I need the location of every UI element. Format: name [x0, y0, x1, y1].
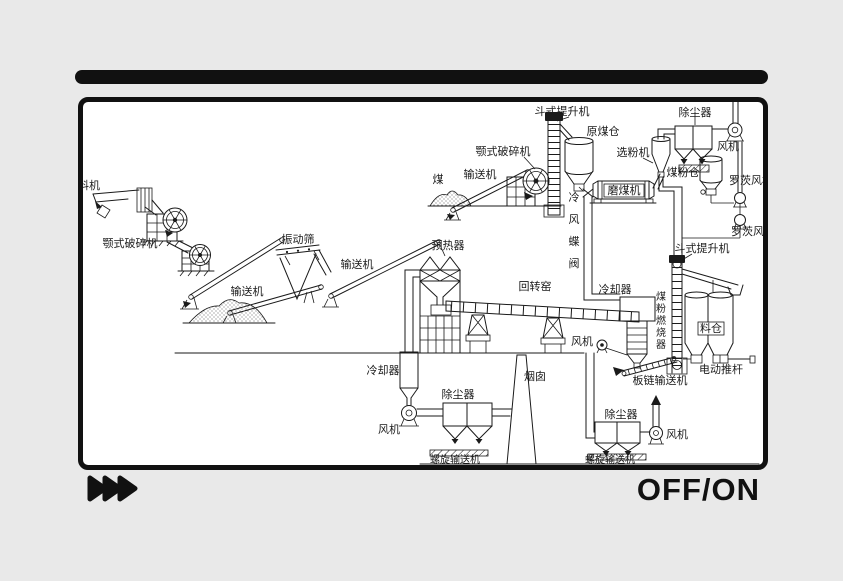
fan-3 — [399, 406, 443, 427]
conveyor-top-label: 输送机 — [464, 167, 497, 181]
rotary-kiln-label: 回转窑 — [519, 279, 552, 293]
cooler-tube — [400, 352, 418, 405]
silo-feed-chute — [682, 269, 743, 295]
fan-top-right-label: 风机 — [717, 139, 739, 153]
cold-air-valve-label: 冷风蝶阀 — [569, 191, 580, 270]
coal-mill-label: 磨煤机 — [608, 183, 641, 197]
preheater-tower — [420, 257, 460, 353]
vibrating-screen-label: 振动筛 — [282, 232, 315, 246]
vibrating-screen-unit — [276, 245, 331, 299]
conveyor-left-lower-label: 输送机 — [231, 284, 264, 298]
cooler-bottom-label: 冷却器 — [367, 364, 400, 377]
coal-powder-burner-label: 煤粉燃烧器 — [656, 290, 666, 351]
jaw-crusher-2 — [178, 245, 214, 277]
plate-chain-conveyor-label: 板链输送机 — [633, 373, 688, 387]
exhaust-duct-to-cooler — [405, 270, 420, 352]
stock-pile-left — [183, 300, 275, 323]
dust-collector-bm-label: 除尘器 — [442, 387, 475, 401]
power-toggle-label[interactable]: OFF/ON — [560, 472, 760, 508]
kiln-hood-cooler — [620, 297, 655, 368]
roots-blower-2-label: 罗茨风机 — [731, 224, 763, 238]
material-bunker-label: 料仓 — [700, 321, 722, 335]
chimney-label: 烟囱 — [524, 369, 546, 383]
fan-4 — [648, 395, 664, 444]
coal-label: 煤 — [433, 173, 444, 186]
kiln-support-1 — [466, 315, 490, 353]
bucket-elevator-2 — [667, 254, 692, 374]
duct-to-collector-3 — [586, 353, 595, 438]
kiln-support-2 — [541, 318, 565, 353]
fast-forward-icon — [86, 474, 142, 504]
screw-conveyor-bm-label: 螺旋输送机 — [430, 453, 480, 465]
classifier-label: 选粉机 — [617, 145, 650, 159]
process-flow-diagram: 料机 颚式破碎机 输送机 振动筛 输送机 煤 输送机 颚式破碎机 斗式提升机 原… — [83, 102, 763, 465]
butterfly-valve — [583, 189, 593, 197]
jaw-crusher-top-label: 颚式破碎机 — [476, 144, 531, 158]
feeder-left-label: 料机 — [83, 178, 100, 192]
electric-push-rod-label: 电动推杆 — [699, 362, 743, 376]
roots-blower-unit-1 — [733, 193, 747, 215]
dust-collector-top-right-label: 除尘器 — [679, 105, 712, 119]
fan-2 — [597, 340, 627, 355]
cooler-kiln-label: 冷却器 — [599, 283, 632, 296]
roots-blower-1-label: 罗茨风机 — [729, 173, 763, 187]
bucket-elevator-top-label: 斗式提升机 — [535, 104, 590, 118]
fan-mid-label: 风机 — [571, 334, 593, 348]
diagram-panel: 料机 颚式破碎机 输送机 振动筛 输送机 煤 输送机 颚式破碎机 斗式提升机 原… — [78, 97, 768, 470]
dust-collector-br-label: 除尘器 — [605, 407, 638, 421]
top-bar — [75, 70, 768, 84]
dust-collector-2 — [430, 403, 512, 456]
screw-conveyor-br-label: 螺旋输送机 — [585, 453, 635, 465]
coal-powder-bunker-label: 煤粉仓 — [667, 165, 700, 179]
fan-bottom-left-label: 风机 — [378, 422, 400, 436]
jaw-crusher-left-label: 颚式破碎机 — [103, 236, 158, 250]
fast-forward-button[interactable] — [86, 474, 142, 504]
conveyor-left-upper-label: 输送机 — [341, 257, 374, 271]
preheater-label: 预热器 — [432, 239, 465, 252]
raw-coal-silo — [565, 138, 593, 192]
raw-coal-bunker-label: 原煤仓 — [587, 124, 620, 138]
fan-bottom-right-label: 风机 — [666, 427, 688, 441]
bucket-elevator-right-label: 斗式提升机 — [675, 241, 730, 255]
